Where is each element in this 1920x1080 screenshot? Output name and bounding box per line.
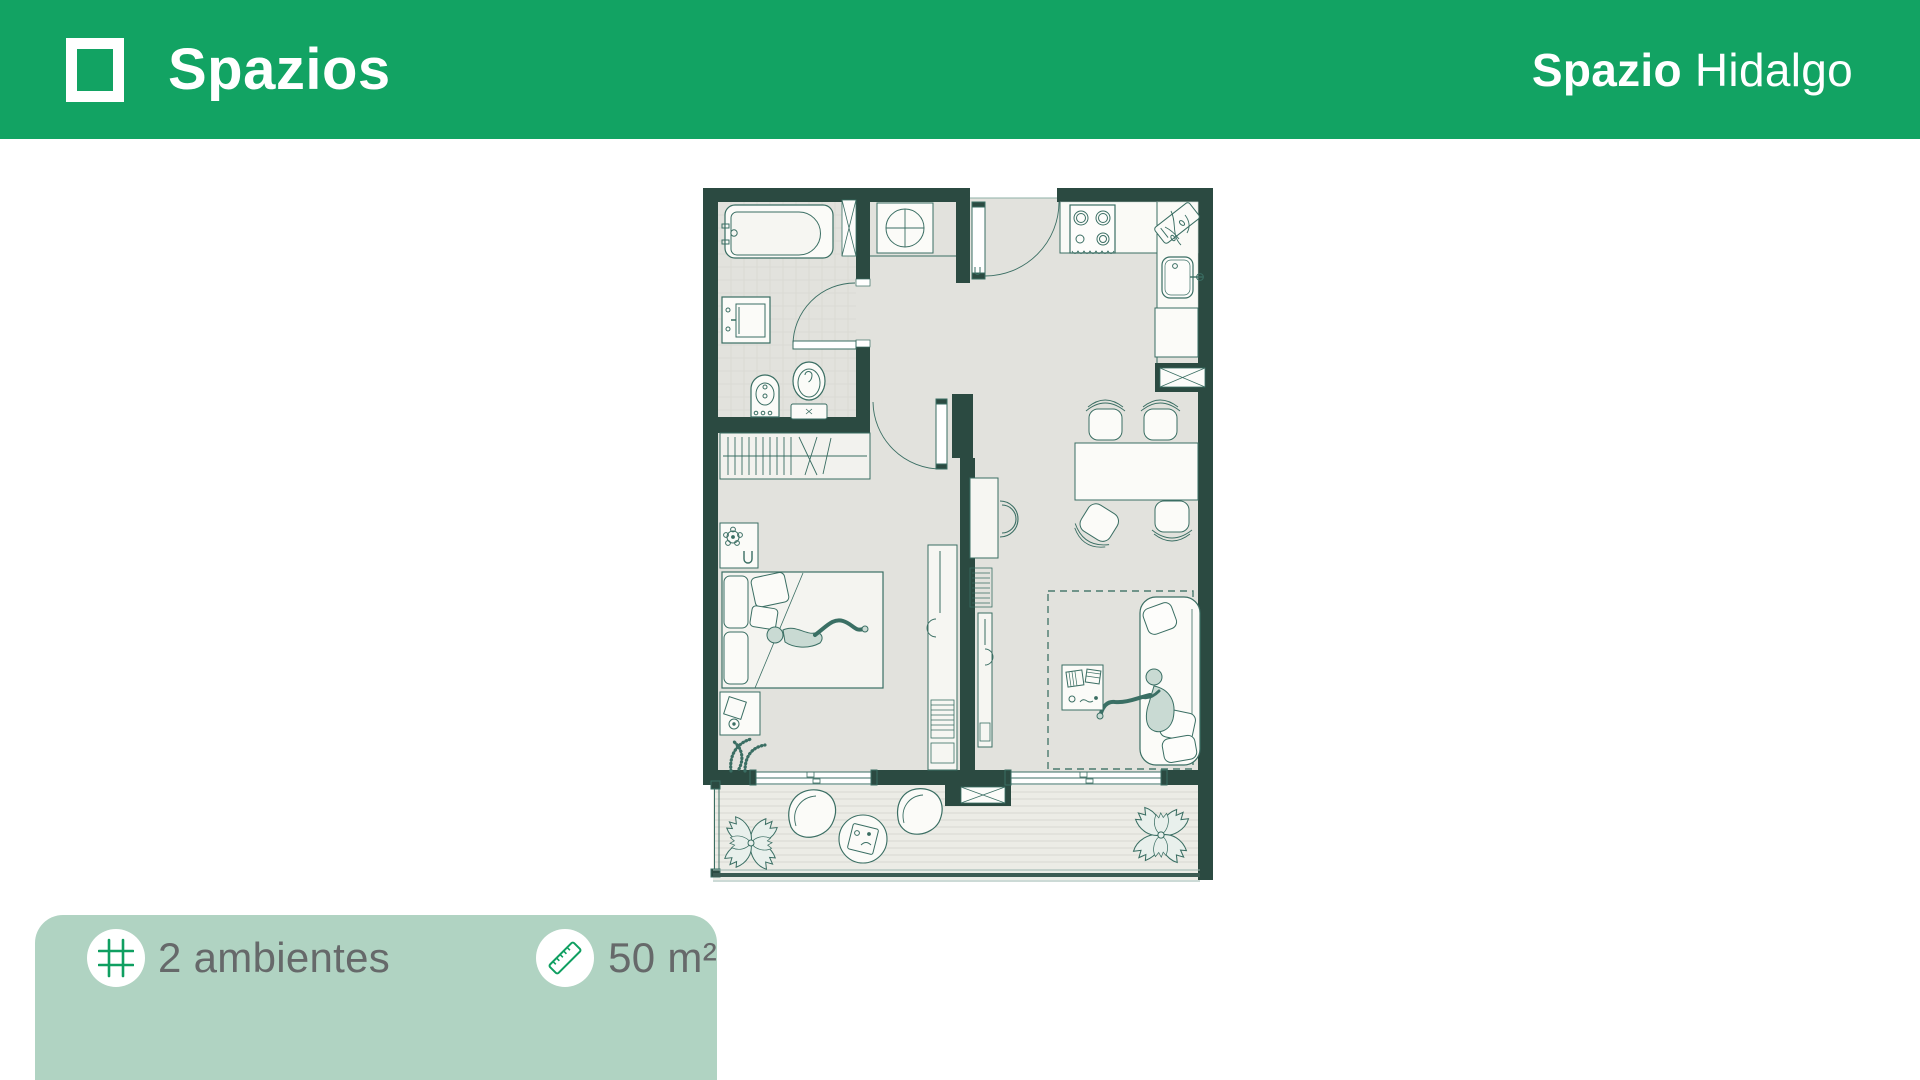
bathtub bbox=[722, 205, 833, 258]
bed-bench bbox=[720, 692, 760, 735]
project-name-bold: Spazio bbox=[1532, 43, 1682, 97]
bedroom-unit bbox=[927, 545, 957, 770]
square-outline-logo-icon bbox=[66, 38, 124, 102]
summary-card: 2 ambientes 50 m² bbox=[35, 915, 717, 1080]
area-size: 50 m² bbox=[536, 929, 717, 987]
shaft-x-kitchen bbox=[1160, 368, 1205, 387]
coffee-table bbox=[1062, 665, 1103, 710]
nightstand bbox=[720, 523, 758, 568]
rooms-count: 2 ambientes bbox=[87, 929, 390, 987]
toilet bbox=[791, 362, 827, 419]
bidet bbox=[751, 375, 779, 417]
ruler-icon bbox=[536, 929, 594, 987]
floorplan-svg bbox=[703, 183, 1213, 890]
brand: Spazios bbox=[66, 0, 391, 139]
balcony-chair bbox=[898, 789, 943, 835]
wardrobe bbox=[720, 433, 870, 479]
sliding-door-bedroom bbox=[750, 770, 877, 785]
dining-table bbox=[1075, 443, 1198, 500]
vanity-sink bbox=[722, 297, 770, 343]
project-title: Spazio Hidalgo bbox=[1532, 0, 1853, 139]
balcony-table bbox=[839, 815, 887, 863]
grid-hash-icon bbox=[87, 929, 145, 987]
header: Spazios Spazio Hidalgo bbox=[0, 0, 1920, 139]
kitchen-cabinet bbox=[1155, 308, 1198, 357]
brand-name: Spazios bbox=[168, 36, 391, 103]
sliding-door-living bbox=[1005, 770, 1167, 785]
double-bed bbox=[722, 572, 883, 688]
stove bbox=[1070, 205, 1115, 254]
rooms-count-label: 2 ambientes bbox=[158, 934, 390, 982]
shaft-x-balcony bbox=[961, 787, 1005, 803]
floorplan-image bbox=[703, 183, 1213, 890]
shaft-x-bathroom bbox=[842, 200, 856, 256]
project-name-light: Hidalgo bbox=[1695, 43, 1853, 97]
area-size-label: 50 m² bbox=[608, 934, 717, 982]
